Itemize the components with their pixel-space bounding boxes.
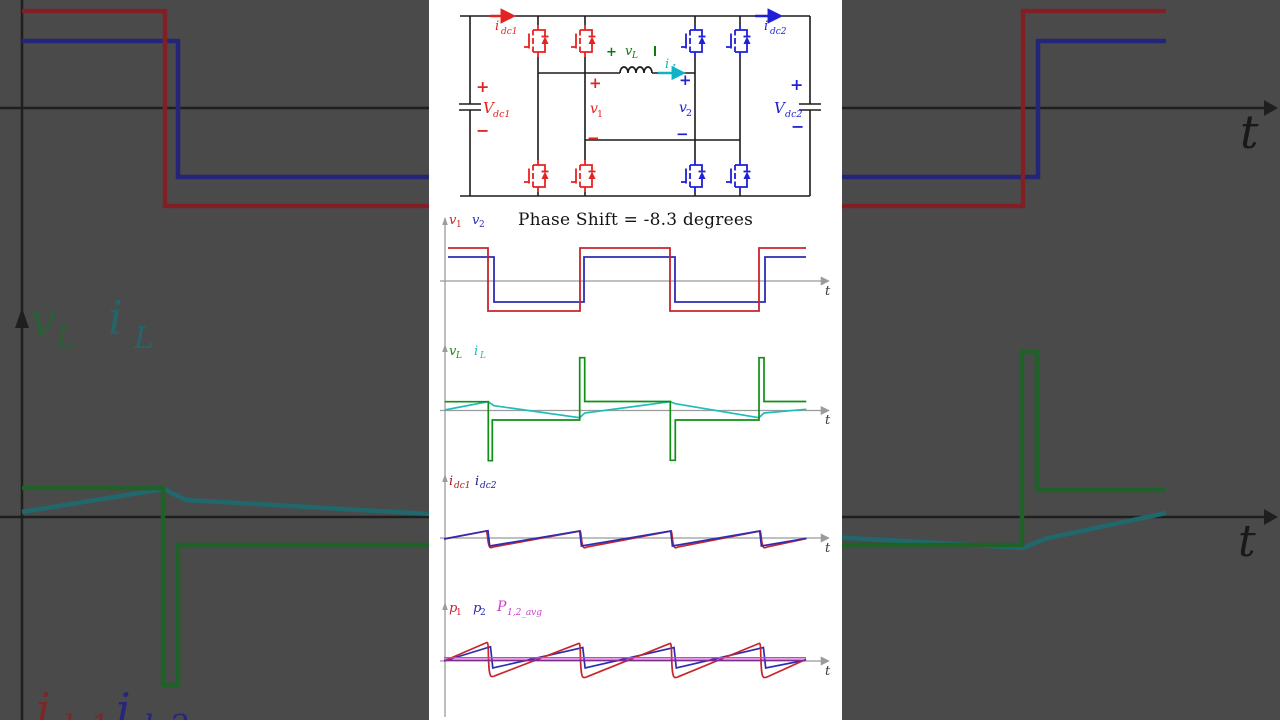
mosfet-icon	[571, 160, 596, 192]
idc1-label: i	[495, 19, 499, 34]
idc2-sub: dc2	[770, 27, 787, 37]
idc2-label: i	[764, 19, 768, 34]
legend-v1-sub: 1	[456, 220, 462, 230]
il-label: i	[665, 57, 669, 72]
mosfet-icon	[524, 25, 549, 57]
bg-idc1-sub: dc1	[54, 709, 109, 720]
dab-converter-schematic: i dc1 + V dc1 − + v 1 − i dc2 + V dc2 − …	[429, 0, 842, 205]
video-frame: t t v L i L i dc1 i dc2	[0, 0, 1280, 720]
mosfet-icon	[571, 25, 596, 57]
mosfet-icon	[726, 25, 751, 57]
y-arrow-2	[442, 344, 448, 352]
wave-vl	[445, 358, 807, 461]
legend-idc1-sub: dc1	[454, 481, 471, 491]
bg-t-label-top: t	[1240, 105, 1259, 159]
legend-vl-sub: L	[455, 351, 462, 361]
bg-vl-label: v	[30, 293, 56, 347]
mosfet-icon	[681, 160, 706, 192]
t-label-2: t	[825, 413, 831, 428]
bridge1-labels: i dc1 + V dc1 − + v 1 −	[476, 19, 603, 147]
vl-sub: L	[631, 51, 638, 61]
inductor-coil	[620, 67, 652, 73]
vdc1-plus: +	[476, 77, 489, 96]
mosfet-icon	[524, 160, 549, 192]
t-label-4: t	[825, 664, 831, 679]
bg-idc2-label: i	[116, 683, 131, 720]
v2-sub: 2	[686, 108, 692, 119]
v1-plus: +	[589, 74, 602, 92]
y-arrow-3	[442, 474, 448, 482]
main-content-panel: i dc1 + V dc1 − + v 1 − i dc2 + V dc2 − …	[429, 0, 842, 720]
legend-pavg: P	[496, 599, 507, 615]
t-label-1: t	[825, 284, 831, 299]
bg-il-label: i	[108, 291, 123, 345]
legend-pavg-sub: 1,2_avg	[507, 608, 542, 618]
vl-plus: +	[606, 45, 617, 60]
bg-idc1-label: i	[36, 683, 51, 720]
waveform-plots: v 1 v 2 v L i L i dc1 i dc2 p 1 p 2	[429, 205, 842, 720]
wave-v2	[448, 257, 806, 302]
bg-vl-sub: L	[55, 321, 76, 356]
y-arrow-1	[442, 217, 448, 225]
legend-idc2: i	[475, 474, 479, 489]
legend-il-sub: L	[479, 351, 486, 361]
bg-il-sub: L	[133, 321, 154, 356]
il-sub: L	[671, 64, 678, 74]
v1-minus: −	[587, 129, 600, 147]
mosfet-icon	[681, 25, 706, 57]
circuit-wires	[459, 16, 821, 196]
idc1-sub: dc1	[501, 27, 518, 37]
legend-p1-sub: 1	[456, 608, 462, 618]
y-arrow-4	[442, 602, 448, 610]
il-labels: i L	[665, 57, 678, 74]
legend-power: p 1 p 2 P 1,2_avg	[449, 599, 542, 618]
vdc2-plus: +	[790, 75, 803, 94]
v2-minus: −	[676, 125, 689, 143]
vl-labels: + v L	[606, 44, 638, 61]
legend-vlil: v L i L	[449, 344, 486, 361]
legend-idc2-sub: dc2	[480, 481, 497, 491]
bg-idc2-sub: dc2	[134, 709, 189, 720]
legend-il: i	[474, 344, 478, 359]
legend-idc: i dc1 i dc2	[449, 474, 497, 491]
v2-plus: +	[679, 71, 692, 89]
vdc1-minus: −	[476, 121, 489, 140]
legend-idc1: i	[449, 474, 453, 489]
legend-v1v2: v 1 v 2	[449, 213, 485, 230]
t-label-3: t	[825, 541, 831, 556]
vdc2-minus: −	[791, 117, 804, 136]
legend-v2-sub: 2	[479, 220, 485, 230]
mosfet-icon	[726, 160, 751, 192]
wave-il	[445, 402, 807, 418]
bg-t-label-mid: t	[1238, 516, 1256, 567]
vdc1-sub: dc1	[493, 109, 510, 120]
v1-sub: 1	[597, 109, 603, 120]
legend-p2-sub: 2	[480, 608, 486, 618]
